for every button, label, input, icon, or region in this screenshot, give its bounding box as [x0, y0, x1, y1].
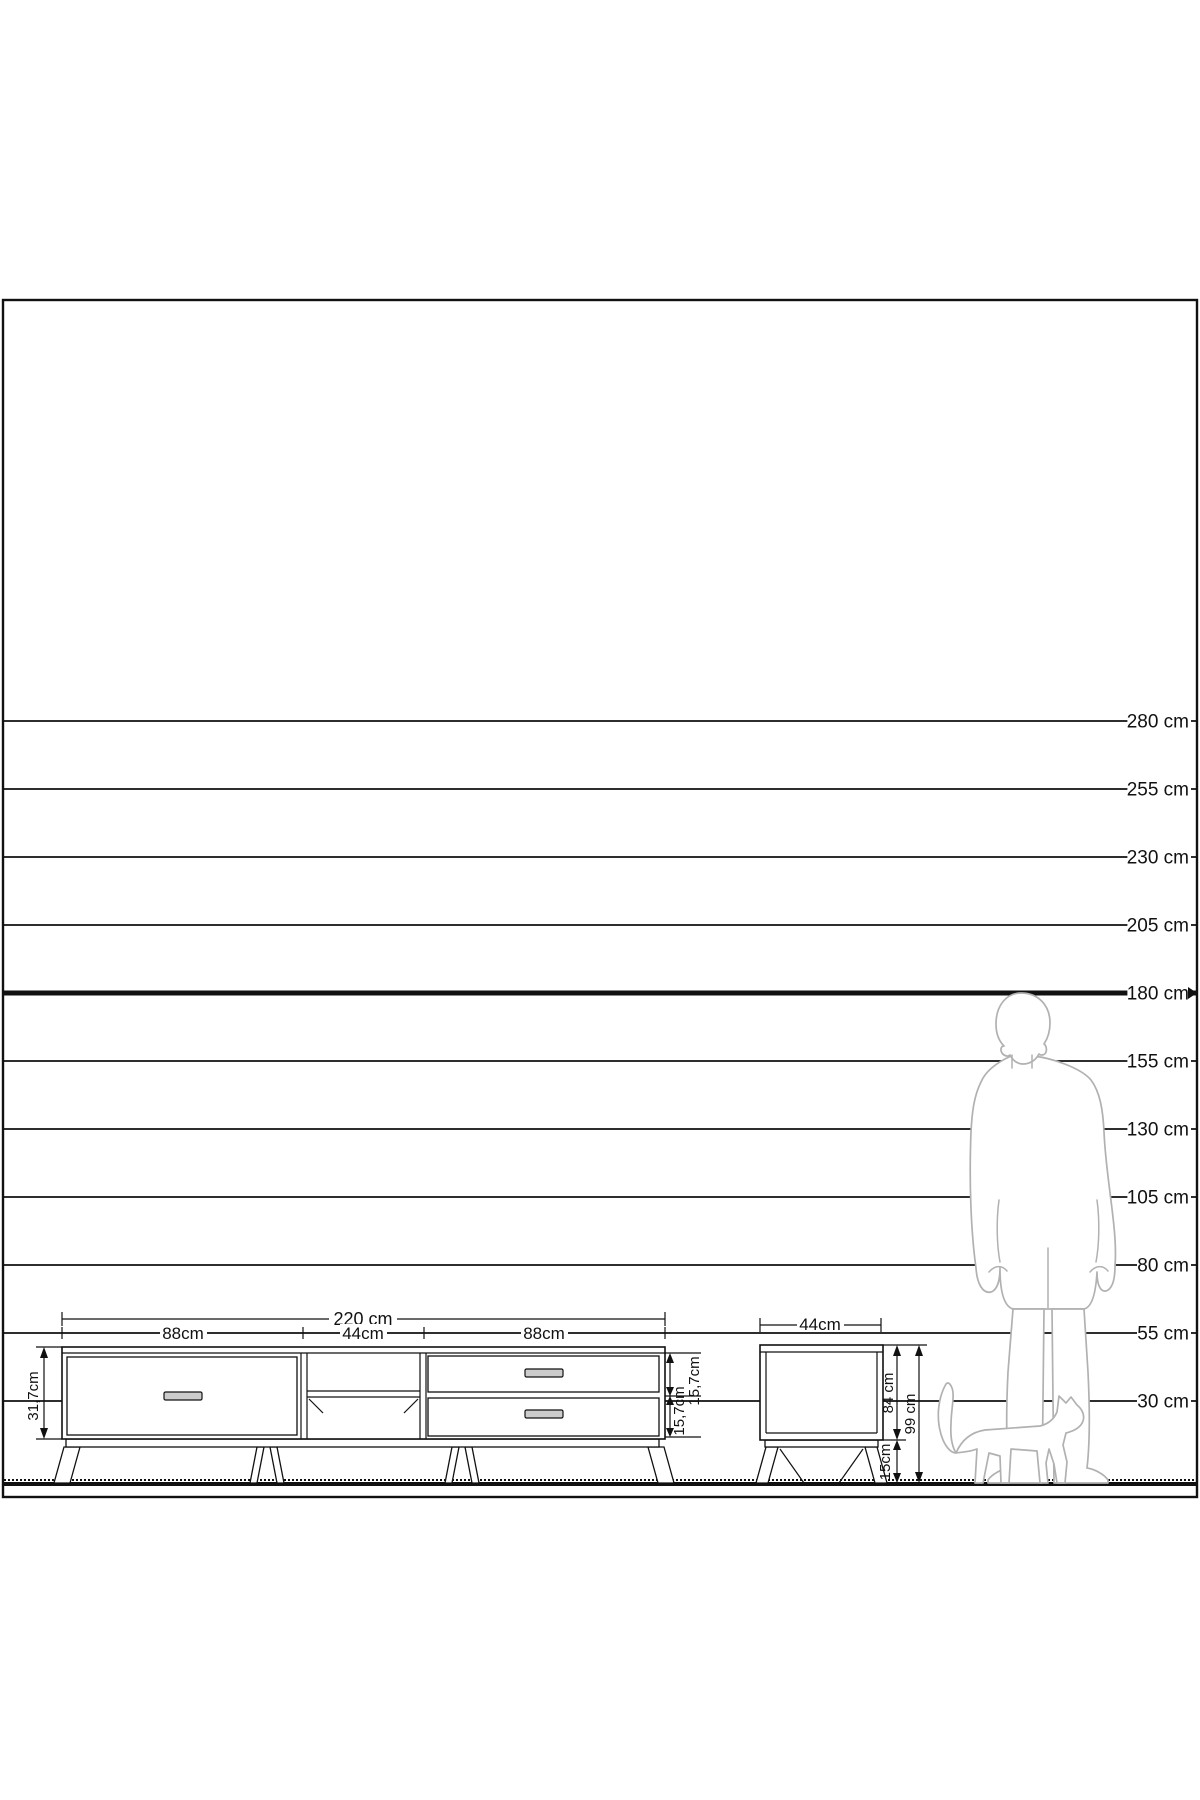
tv-section-width-label: 88cm [162, 1324, 204, 1343]
tv-stand-height-label: 31,7cm [25, 1371, 42, 1420]
height-label-30: 30 cm [1137, 1392, 1189, 1413]
height-label-155: 155 cm [1127, 1052, 1189, 1073]
height-label-105: 105 cm [1127, 1188, 1189, 1209]
height-label-55: 55 cm [1137, 1324, 1189, 1345]
tv-stand-base-rail [66, 1439, 659, 1447]
height-label-255: 255 cm [1127, 780, 1189, 801]
tv-stand-door-handle [164, 1392, 202, 1400]
height-label-230: 230 cm [1127, 848, 1189, 869]
tv-stand-drawer-handle [525, 1410, 563, 1418]
nightstand-total-height-label: 99 cm [902, 1394, 919, 1435]
nightstand-leg-height-label: 15cm [877, 1444, 894, 1481]
tv-stand-drawer-handle [525, 1369, 563, 1377]
tv-drawer-height-label: 15,7cm [686, 1356, 703, 1405]
tv-section-width-label: 44cm [342, 1324, 384, 1343]
tv-section-width-label: 88cm [523, 1324, 565, 1343]
height-label-80: 80 cm [1137, 1256, 1189, 1277]
height-label-130: 130 cm [1127, 1120, 1189, 1141]
nightstand-body [760, 1345, 883, 1440]
scale-diagram: 280 cm255 cm230 cm205 cm180 cm155 cm130 … [0, 0, 1200, 1800]
nightstand-body-height-label: 84 cm [880, 1373, 897, 1414]
nightstand-base-rail [765, 1440, 878, 1447]
nightstand-width-label: 44cm [799, 1315, 841, 1334]
height-label-205: 205 cm [1127, 916, 1189, 937]
man-body [970, 1056, 1115, 1309]
man-head [996, 993, 1050, 1064]
height-label-280: 280 cm [1127, 712, 1189, 733]
height-label-180: 180 cm [1127, 984, 1189, 1005]
